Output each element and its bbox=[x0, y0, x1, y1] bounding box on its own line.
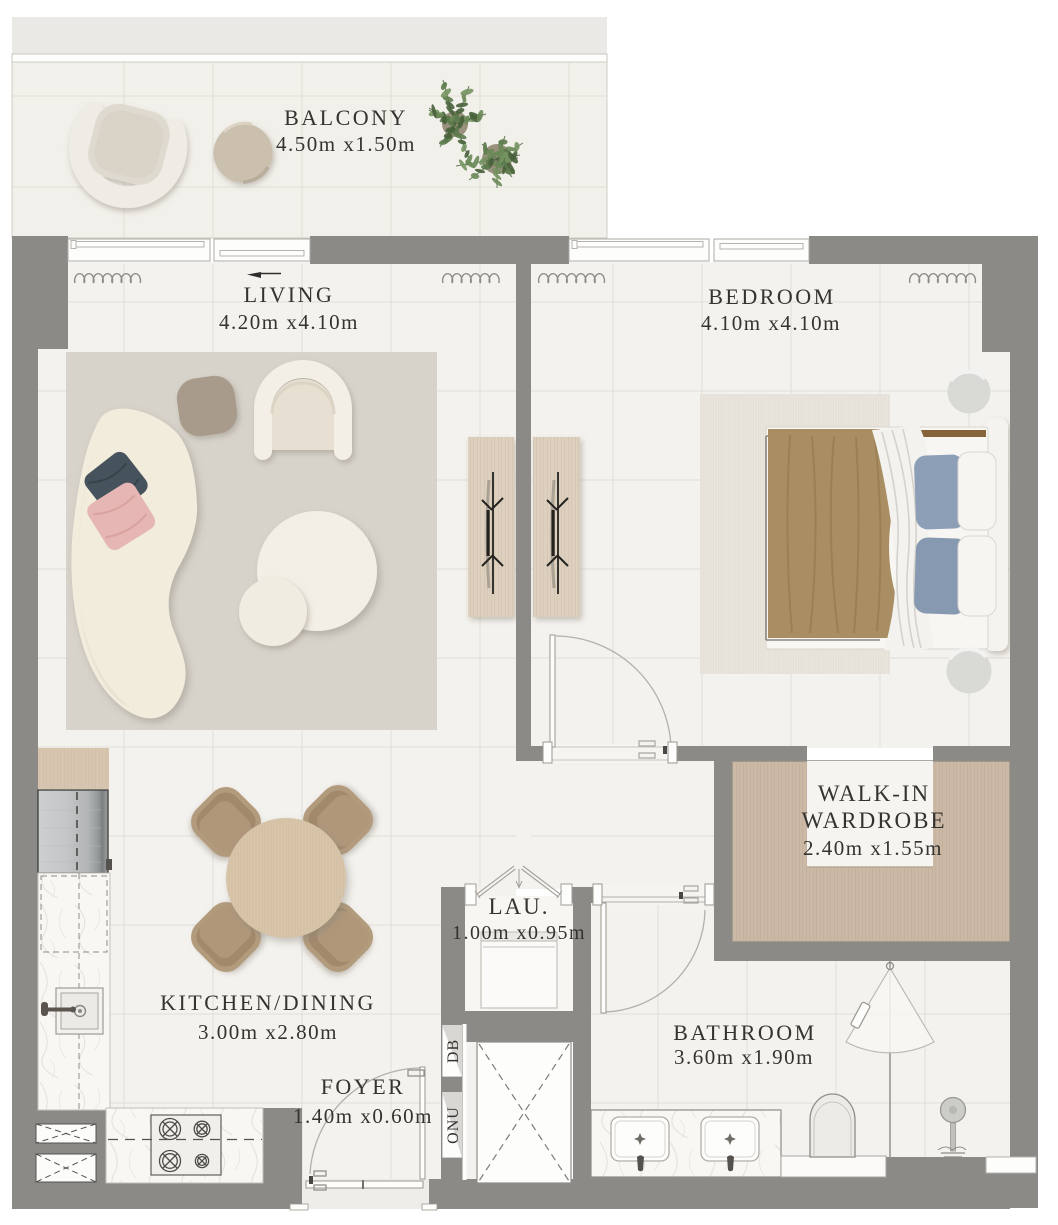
svg-text:LAU.: LAU. bbox=[488, 894, 549, 919]
svg-text:WARDROBE: WARDROBE bbox=[801, 808, 946, 833]
svg-text:DB: DB bbox=[445, 1039, 462, 1063]
svg-text:4.50m x1.50m: 4.50m x1.50m bbox=[276, 132, 416, 156]
svg-text:1.40m x0.60m: 1.40m x0.60m bbox=[293, 1104, 433, 1128]
svg-text:LIVING: LIVING bbox=[244, 282, 335, 307]
svg-text:4.10m x4.10m: 4.10m x4.10m bbox=[701, 311, 841, 335]
svg-text:2.40m x1.55m: 2.40m x1.55m bbox=[803, 836, 943, 860]
svg-text:WALK-IN: WALK-IN bbox=[818, 781, 930, 806]
svg-text:1.00m x0.95m: 1.00m x0.95m bbox=[452, 922, 586, 944]
svg-text:KITCHEN/DINING: KITCHEN/DINING bbox=[160, 990, 376, 1015]
svg-text:BALCONY: BALCONY bbox=[284, 105, 408, 130]
svg-text:BATHROOM: BATHROOM bbox=[673, 1020, 816, 1045]
svg-text:4.20m x4.10m: 4.20m x4.10m bbox=[219, 310, 359, 334]
svg-text:ONU: ONU bbox=[445, 1106, 462, 1144]
svg-text:FOYER: FOYER bbox=[321, 1074, 406, 1099]
svg-text:3.00m x2.80m: 3.00m x2.80m bbox=[198, 1020, 338, 1044]
svg-text:BEDROOM: BEDROOM bbox=[708, 284, 836, 309]
svg-text:3.60m x1.90m: 3.60m x1.90m bbox=[674, 1045, 814, 1069]
